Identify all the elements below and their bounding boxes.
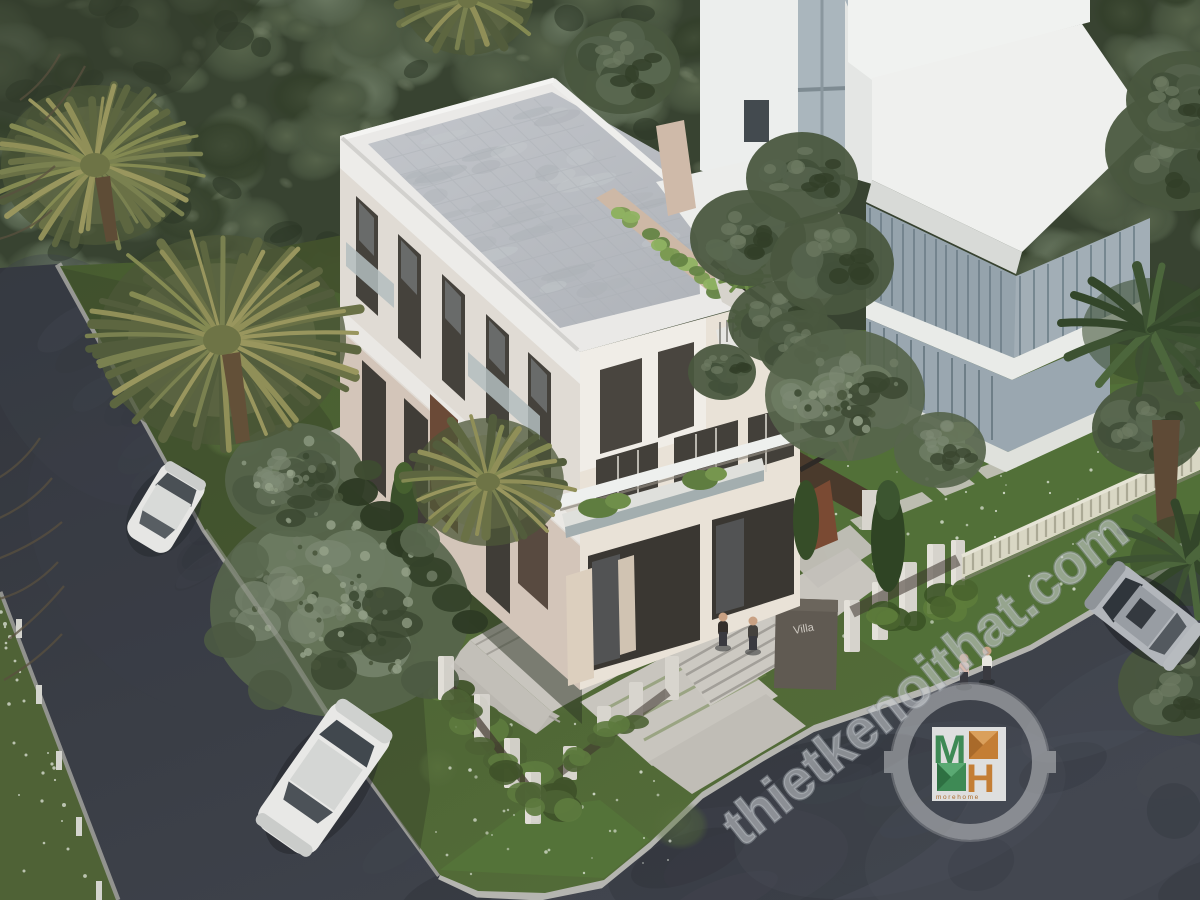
svg-text:morehome: morehome xyxy=(936,794,980,801)
